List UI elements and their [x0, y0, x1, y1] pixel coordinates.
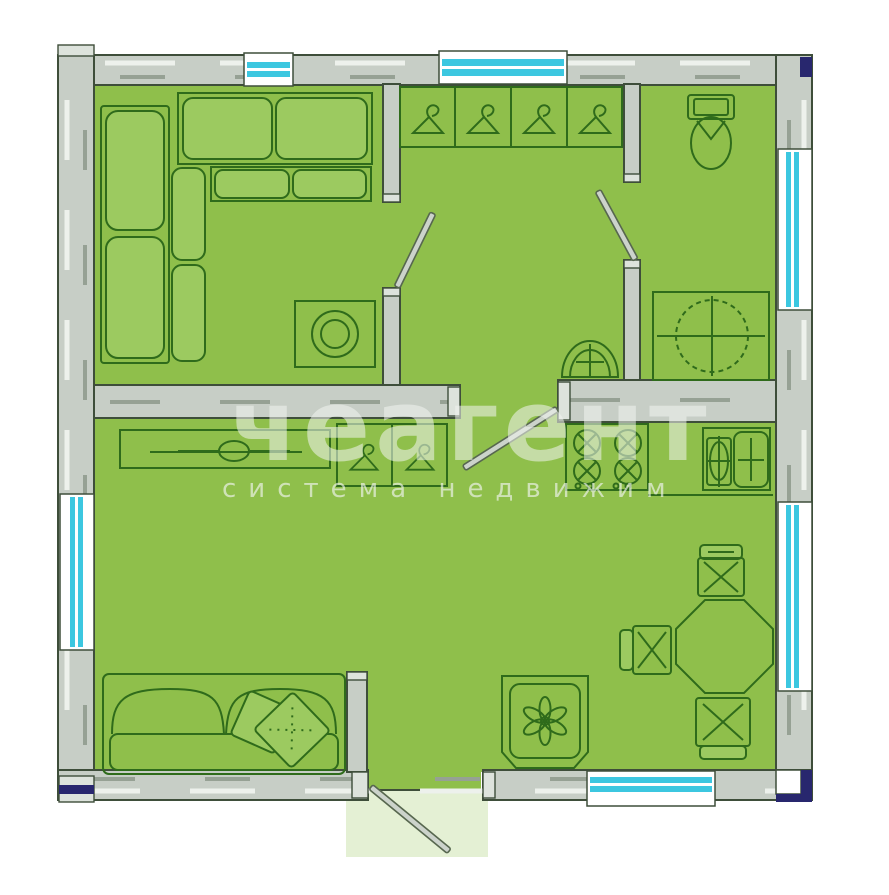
- floor-plan-image: чеагент система недвижим: [0, 0, 889, 895]
- window-top-left: [244, 53, 293, 86]
- window-right-lower: [778, 502, 812, 691]
- watermark: чеагент система недвижим: [222, 369, 712, 504]
- window-right-upper: [778, 149, 812, 310]
- watermark-subtitle: система недвижим: [222, 474, 678, 504]
- watermark-title: чеагент: [230, 369, 712, 484]
- window-bottom: [587, 771, 715, 806]
- window-left: [60, 494, 94, 650]
- window-top-center: [439, 51, 567, 84]
- floor-plan-page: чеагент система недвижим: [0, 0, 889, 895]
